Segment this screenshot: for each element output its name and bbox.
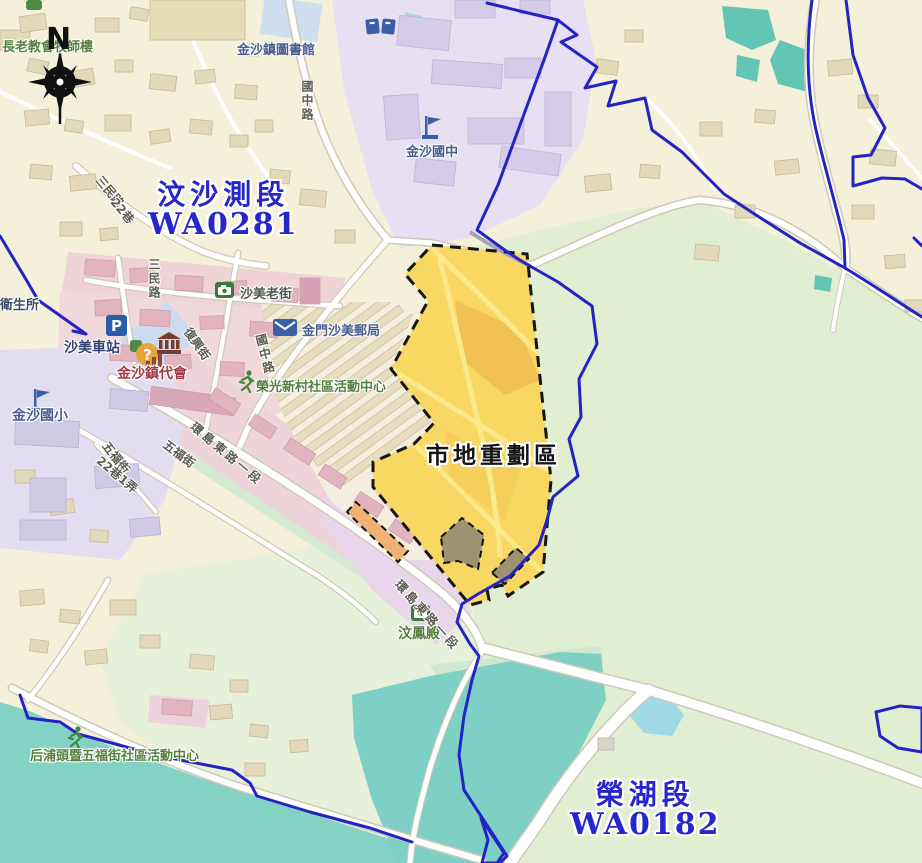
section-ronghu-code: WA0182 [570,809,721,841]
post-office-envelope-icon [273,319,297,336]
poi-label-town-council: 金沙鎮代會 [117,363,187,383]
poi-label-houputou-center: 后浦頭暨五福街社區活動中心 [30,745,199,764]
poi-label-elementary: 金沙國小 [12,405,68,425]
poi-label-post-office: 金門沙美郵局 [302,320,380,339]
zone-label: 市地重劃區 [426,436,561,470]
poi-label-bus-station: 沙美車站 [64,337,120,357]
road-label-guozhong-n: 國中路 [299,80,316,122]
section-wensha-code: WA0281 [148,209,299,241]
section-wensha-name: 汶沙測段 [148,180,299,209]
poi-label-rongguang-center: 榮光新村社區活動中心 [256,376,386,395]
road-label-sanmin-b: 三民路 [146,258,163,300]
section-label-wensha: 汶沙測段 WA0281 [148,180,299,241]
parking-icon: P [106,315,127,336]
basemap-svg [0,0,922,863]
poi-label-health-station: 衛生所 [0,294,39,313]
library-books-icon [364,17,408,35]
town-council-bank-icon [157,332,181,354]
compass-north-label: N [46,22,71,57]
junior-high-flag-icon [422,114,444,140]
poi-label-town-library: 金沙鎮圖書館 [237,39,315,58]
section-ronghu-name: 榮湖段 [570,780,721,809]
leisure-icon [26,0,42,10]
old-street-camera-icon [215,282,234,298]
poi-label-junior-high: 金沙國中 [406,141,458,160]
section-label-ronghu: 榮湖段 WA0182 [570,780,721,841]
poi-label-old-street: 沙美老街 [240,283,292,302]
community-running-icon [238,370,256,394]
map-canvas: P ? 長老教會牧師樓 金沙鎮圖書館 金沙國中 沙美老街 金門沙美郵局 沙美車站… [0,0,922,863]
